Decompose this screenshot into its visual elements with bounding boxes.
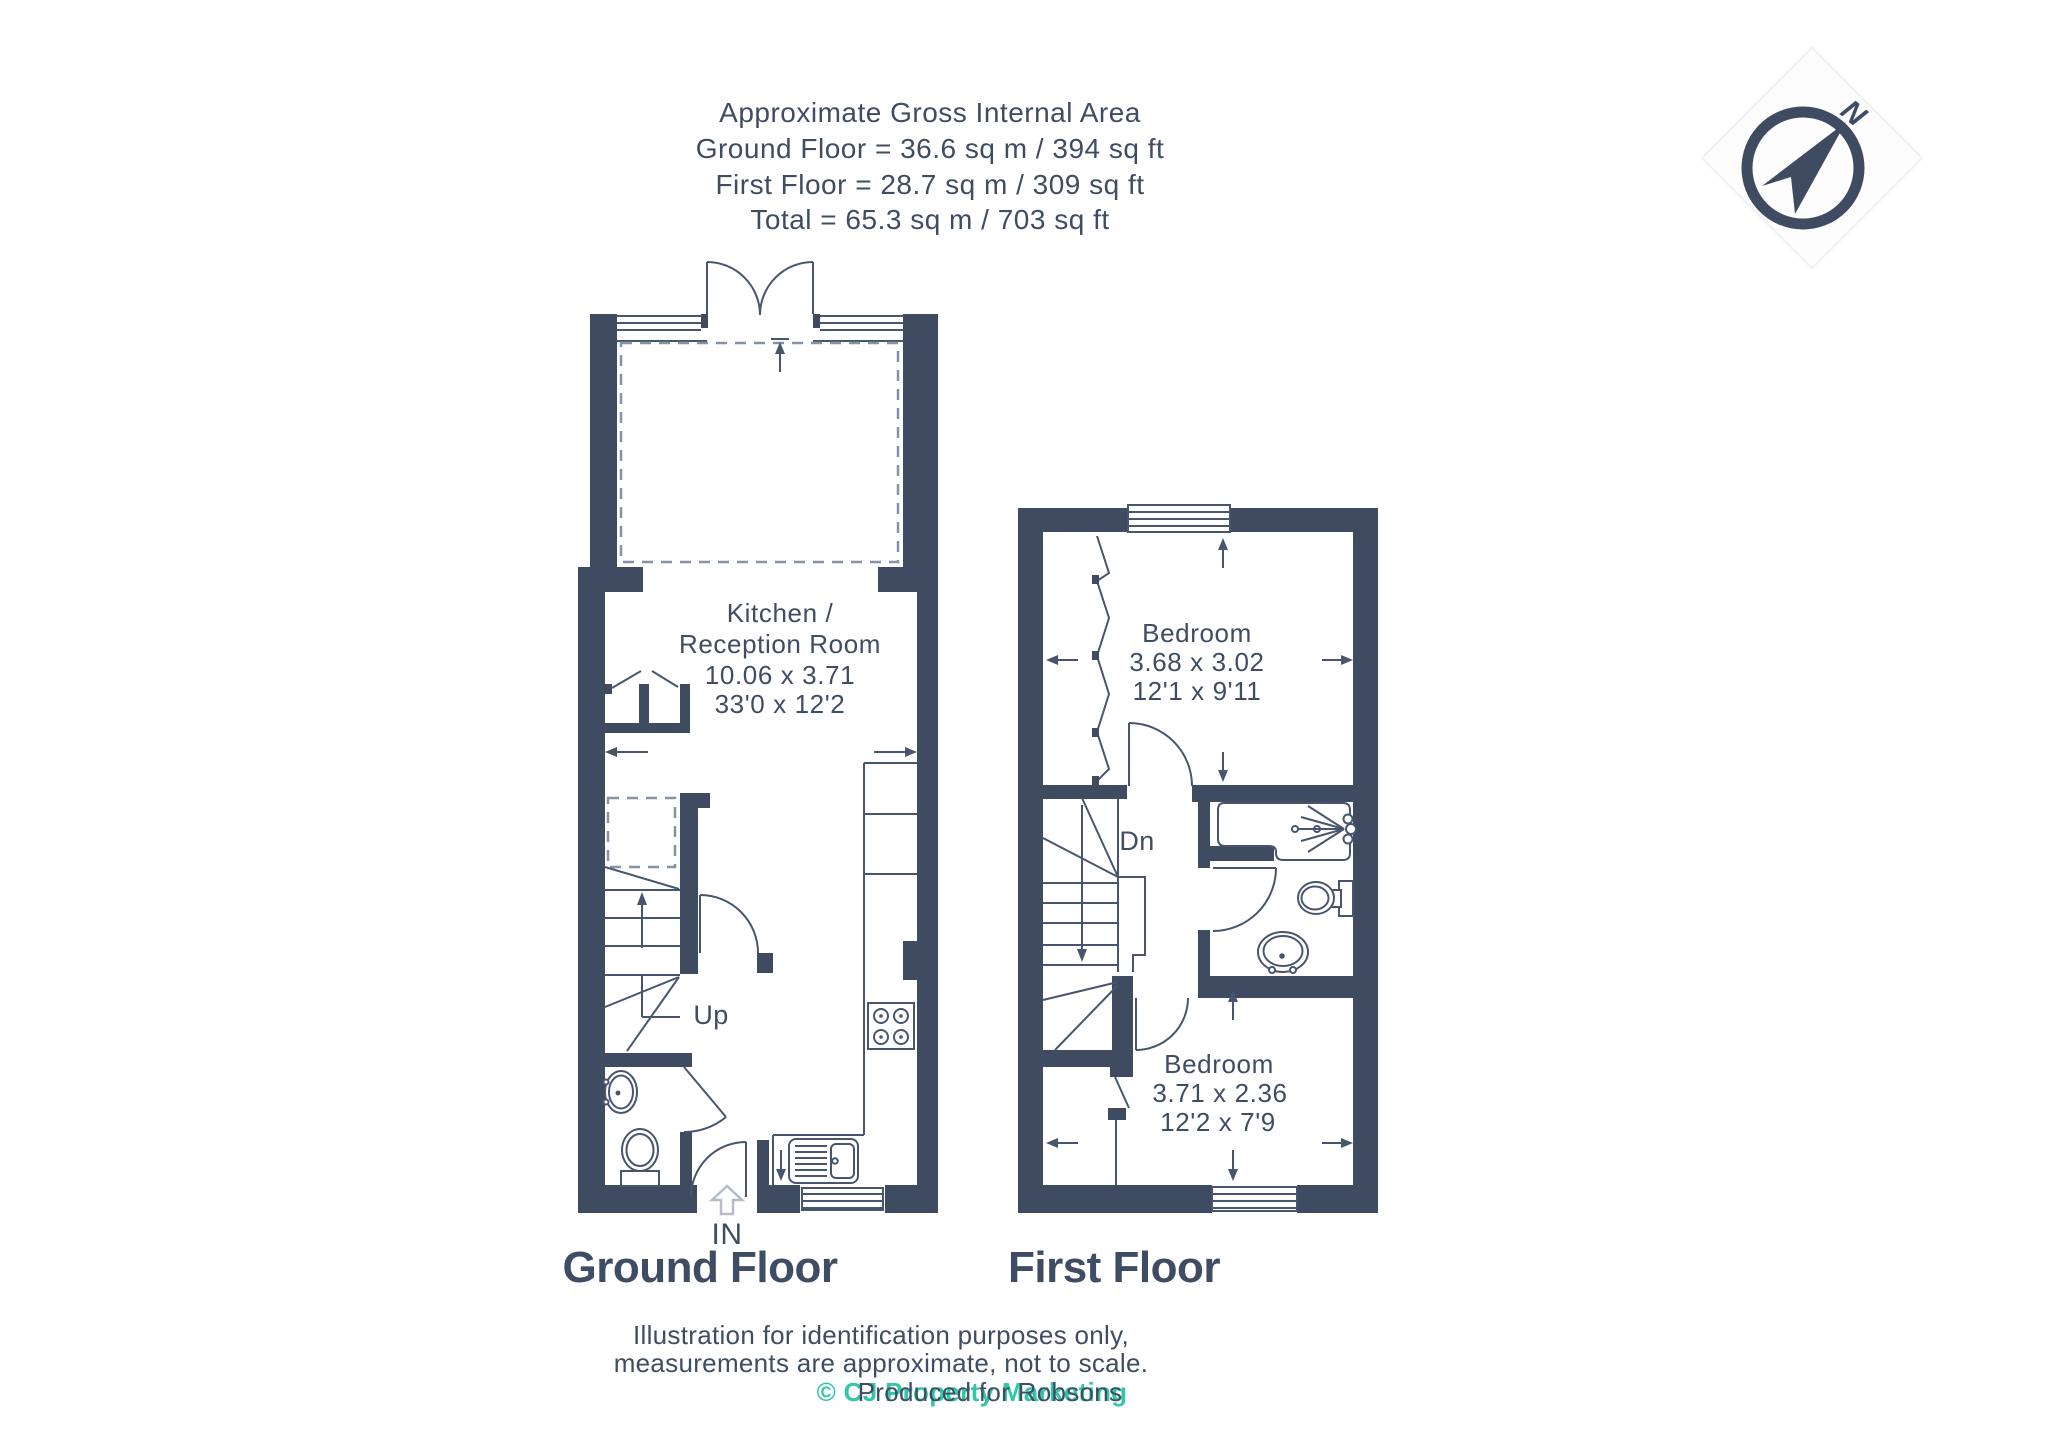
bedroom2-label: Bedroom xyxy=(1164,1049,1274,1079)
compass-icon: N xyxy=(1702,48,1923,269)
bedroom1-door xyxy=(1129,723,1192,786)
kitchen-counter xyxy=(773,763,917,1186)
produced-for-label: Produced for Robsons xyxy=(858,1377,1123,1407)
window xyxy=(813,314,903,342)
dashed-appliance-outline xyxy=(608,798,675,867)
kitchen-dims-metric: 10.06 x 3.71 xyxy=(705,660,855,690)
toilet-icon xyxy=(1298,881,1353,916)
kitchen-sink-icon xyxy=(789,1139,858,1183)
bathroom-door xyxy=(1213,868,1276,931)
kitchen-label-line1: Kitchen / xyxy=(727,598,834,628)
bedroom1-dims-metric: 3.68 x 3.02 xyxy=(1129,647,1264,677)
zigzag-wall xyxy=(1092,536,1109,785)
bedroom1-label: Bedroom xyxy=(1142,618,1252,648)
toilet-icon xyxy=(621,1129,659,1186)
ground-floor-title: Ground Floor xyxy=(562,1243,837,1292)
bedroom2-door xyxy=(1136,998,1188,1050)
bathroom-sink-icon xyxy=(1258,932,1308,973)
ground-floor-plan: Kitchen / Reception Room 10.06 x 3.71 33… xyxy=(562,262,938,1292)
closet-door xyxy=(1115,1077,1129,1185)
entrance-in-arrow-icon xyxy=(712,1186,742,1214)
window xyxy=(1212,1187,1297,1211)
kitchen-label-line2: Reception Room xyxy=(679,629,881,659)
window xyxy=(800,1187,885,1211)
dashed-area-outline xyxy=(621,343,898,562)
floorplan-canvas: Approximate Gross Internal Area Ground F… xyxy=(0,0,2048,1434)
stairs-down-label: Dn xyxy=(1119,826,1154,856)
bedroom1-dims-imperial: 12'1 x 9'11 xyxy=(1133,676,1262,706)
window xyxy=(617,314,708,342)
wc-sink-icon xyxy=(604,1071,638,1113)
stairs-up-label: Up xyxy=(693,1000,728,1030)
hob-icon xyxy=(868,1003,914,1049)
disclaimer-line-2: measurements are approximate, not to sca… xyxy=(614,1348,1149,1378)
bedroom2-dims-imperial: 12'2 x 7'9 xyxy=(1160,1107,1276,1137)
first-floor-title: First Floor xyxy=(1008,1243,1220,1292)
disclaimer-line-1: Illustration for identification purposes… xyxy=(633,1320,1129,1350)
stairs-up xyxy=(605,867,680,1051)
disclaimer: Illustration for identification purposes… xyxy=(614,1320,1149,1407)
bedroom2-dims-metric: 3.71 x 2.36 xyxy=(1152,1078,1287,1108)
window xyxy=(1128,505,1230,532)
area-summary: Approximate Gross Internal Area Ground F… xyxy=(696,97,1165,235)
header-line-2: Ground Floor = 36.6 sq m / 394 sq ft xyxy=(696,133,1165,164)
wc-door xyxy=(684,1067,726,1132)
kitchen-dims-imperial: 33'0 x 12'2 xyxy=(715,689,846,719)
entrance-door xyxy=(691,1142,746,1197)
hall-door xyxy=(700,895,758,953)
french-doors xyxy=(707,262,813,315)
first-floor-plan: Bedroom 3.68 x 3.02 12'1 x 9'11 Dn Bedro… xyxy=(1008,505,1378,1292)
header-line-4: Total = 65.3 sq m / 703 sq ft xyxy=(750,204,1109,235)
cupboard xyxy=(603,671,690,733)
header-line-3: First Floor = 28.7 sq m / 309 sq ft xyxy=(715,169,1144,200)
header-line-1: Approximate Gross Internal Area xyxy=(719,97,1141,128)
